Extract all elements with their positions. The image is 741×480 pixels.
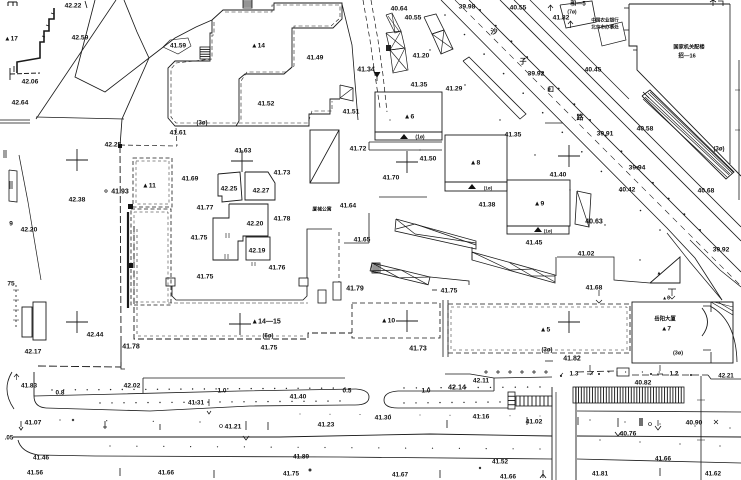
svg-text:41.66: 41.66 [655,456,671,463]
svg-text:41.30: 41.30 [375,415,392,422]
svg-text:1.0: 1.0 [422,388,431,395]
svg-text:41.70: 41.70 [383,175,400,182]
svg-text:41.75: 41.75 [197,274,214,281]
svg-text:41.51: 41.51 [343,109,360,116]
svg-text:41.75: 41.75 [191,235,208,242]
svg-text:(1ø): (1ø) [484,186,493,191]
svg-text:▲10: ▲10 [381,318,396,325]
svg-text:41.73: 41.73 [274,170,291,177]
svg-text:1.2: 1.2 [670,371,679,378]
svg-text:招—16: 招—16 [678,52,695,60]
svg-text:41.31: 41.31 [188,400,204,407]
svg-text:41.35: 41.35 [411,82,428,89]
svg-text:41.16: 41.16 [473,414,490,421]
svg-text:41.40: 41.40 [290,394,307,401]
svg-text:39.92: 39.92 [713,247,730,254]
svg-text:41.89: 41.89 [293,454,309,461]
svg-text:▲6: ▲6 [404,114,415,121]
svg-text:沙: 沙 [491,28,498,36]
svg-text:40.64: 40.64 [391,6,408,13]
svg-text:42.38: 42.38 [69,197,86,204]
svg-text:41.68: 41.68 [586,285,603,292]
svg-text:(3ø): (3ø) [673,351,683,357]
svg-text:39.94: 39.94 [629,165,646,172]
svg-text:41.83: 41.83 [21,383,37,390]
svg-text:41.66: 41.66 [158,470,174,477]
svg-text:41.20: 41.20 [413,53,430,60]
svg-text:41.23: 41.23 [318,422,335,429]
svg-text:(3ø): (3ø) [542,348,553,354]
svg-text:42.44: 42.44 [87,332,104,339]
svg-text:▲7: ▲7 [661,326,671,333]
svg-text:0.8: 0.8 [56,390,65,397]
svg-text:41.62: 41.62 [705,471,721,478]
svg-text:41.29: 41.29 [446,86,463,93]
svg-text:75: 75 [7,281,15,288]
svg-text:42.22: 42.22 [65,3,82,10]
svg-text:41.75: 41.75 [261,345,278,352]
svg-text:41.82: 41.82 [553,15,570,22]
svg-text:岳阳大厦: 岳阳大厦 [654,315,676,323]
svg-text:0.5: 0.5 [343,388,352,395]
svg-text:40.58: 40.58 [637,126,654,133]
svg-text:和—5: 和—5 [569,0,586,8]
svg-text:42.17: 42.17 [25,349,42,356]
svg-text:39.98: 39.98 [459,4,476,11]
svg-text:41.77: 41.77 [197,205,214,212]
svg-text:1.0: 1.0 [218,388,227,395]
svg-text:▲11: ▲11 [142,183,156,190]
svg-text:41.34: 41.34 [357,67,375,74]
svg-text:41.61: 41.61 [170,130,187,137]
svg-text:▲14—15: ▲14—15 [251,319,281,326]
svg-text:41.72: 41.72 [350,146,367,153]
svg-text:(3ø): (3ø) [197,121,208,127]
svg-text:41.45: 41.45 [526,240,543,247]
svg-text:40.45: 40.45 [585,67,602,74]
svg-text:41.81: 41.81 [592,471,608,478]
svg-text:北京市办事处: 北京市办事处 [591,24,619,31]
svg-text:42.20: 42.20 [247,221,264,228]
svg-text:42.02: 42.02 [124,383,141,390]
svg-text:39.91: 39.91 [597,131,614,138]
svg-text:40.42: 40.42 [619,187,636,194]
svg-text:(1ø): (1ø) [415,135,425,141]
svg-text:41.76: 41.76 [269,265,286,272]
svg-text:41.78: 41.78 [274,216,291,223]
svg-text:41.66: 41.66 [500,474,516,480]
svg-text:41.63: 41.63 [235,148,252,155]
svg-text:42.19: 42.19 [249,248,266,255]
svg-text:41.67: 41.67 [392,472,408,479]
svg-text:41.56: 41.56 [27,470,43,477]
svg-text:42.59: 42.59 [72,35,89,42]
svg-text:.05: .05 [5,435,14,442]
svg-text:▲: ▲ [657,271,662,277]
svg-text:41.40: 41.40 [550,172,567,179]
svg-text:41.52: 41.52 [492,459,508,466]
svg-text:子: 子 [520,58,527,66]
svg-text:41.46: 41.46 [33,455,49,462]
svg-text:40.82: 40.82 [635,380,652,387]
svg-text:40.90: 40.90 [686,420,703,427]
svg-text:▲9: ▲9 [534,201,545,208]
svg-text:41.75: 41.75 [441,288,458,295]
svg-text:1.3: 1.3 [570,371,579,378]
svg-text:41.78: 41.78 [122,344,140,351]
svg-text:42.64: 42.64 [12,100,29,107]
svg-text:41.49: 41.49 [307,55,324,62]
svg-text:40.68: 40.68 [698,188,715,195]
svg-text:41.64: 41.64 [340,203,357,210]
svg-text:41.07: 41.07 [25,420,42,427]
svg-text:40.55: 40.55 [510,5,527,12]
svg-text:▲17: ▲17 [4,36,18,43]
svg-text:41.59: 41.59 [170,43,186,50]
svg-text:41.35: 41.35 [505,132,522,139]
svg-text:42.14: 42.14 [448,383,466,392]
svg-text:41.79: 41.79 [346,286,364,293]
svg-text:(7ø): (7ø) [567,10,577,16]
svg-text:42.06: 42.06 [22,79,39,86]
svg-text:路: 路 [577,113,585,122]
svg-text:41.69: 41.69 [182,176,199,183]
svg-text:(6ø): (6ø) [263,334,274,340]
svg-text:41.02: 41.02 [526,419,543,426]
svg-text:▲8: ▲8 [470,160,481,167]
svg-text:39.92: 39.92 [528,71,545,78]
svg-text:41.65: 41.65 [354,237,371,244]
svg-text:42.25: 42.25 [221,186,238,193]
svg-text:(3ø): (3ø) [714,147,725,153]
svg-text:41.82: 41.82 [563,356,581,363]
svg-text:9: 9 [9,221,13,228]
svg-text:42.11: 42.11 [473,378,489,385]
svg-text:42.21: 42.21 [718,373,734,380]
svg-text:厦械公寓: 厦械公寓 [312,206,331,213]
svg-text:42.20: 42.20 [21,227,38,234]
svg-text:41.73: 41.73 [409,346,427,353]
svg-text:41.50: 41.50 [420,156,437,163]
svg-text:(1ø): (1ø) [544,229,553,234]
svg-text:40.55: 40.55 [405,15,422,22]
svg-text:▲14: ▲14 [251,43,265,50]
svg-text:41.75: 41.75 [283,471,299,478]
svg-text:41.52: 41.52 [258,101,275,108]
svg-text:41.02: 41.02 [578,251,595,258]
svg-text:42.27: 42.27 [253,188,270,195]
svg-text:41.38: 41.38 [479,202,496,209]
svg-text:41.21: 41.21 [225,424,242,431]
svg-text:中国农业银行: 中国农业银行 [591,17,619,24]
svg-text:▲6: ▲6 [662,296,670,302]
svg-text:▲5: ▲5 [540,327,551,334]
svg-text:国家机关配楼: 国家机关配楼 [673,43,705,51]
